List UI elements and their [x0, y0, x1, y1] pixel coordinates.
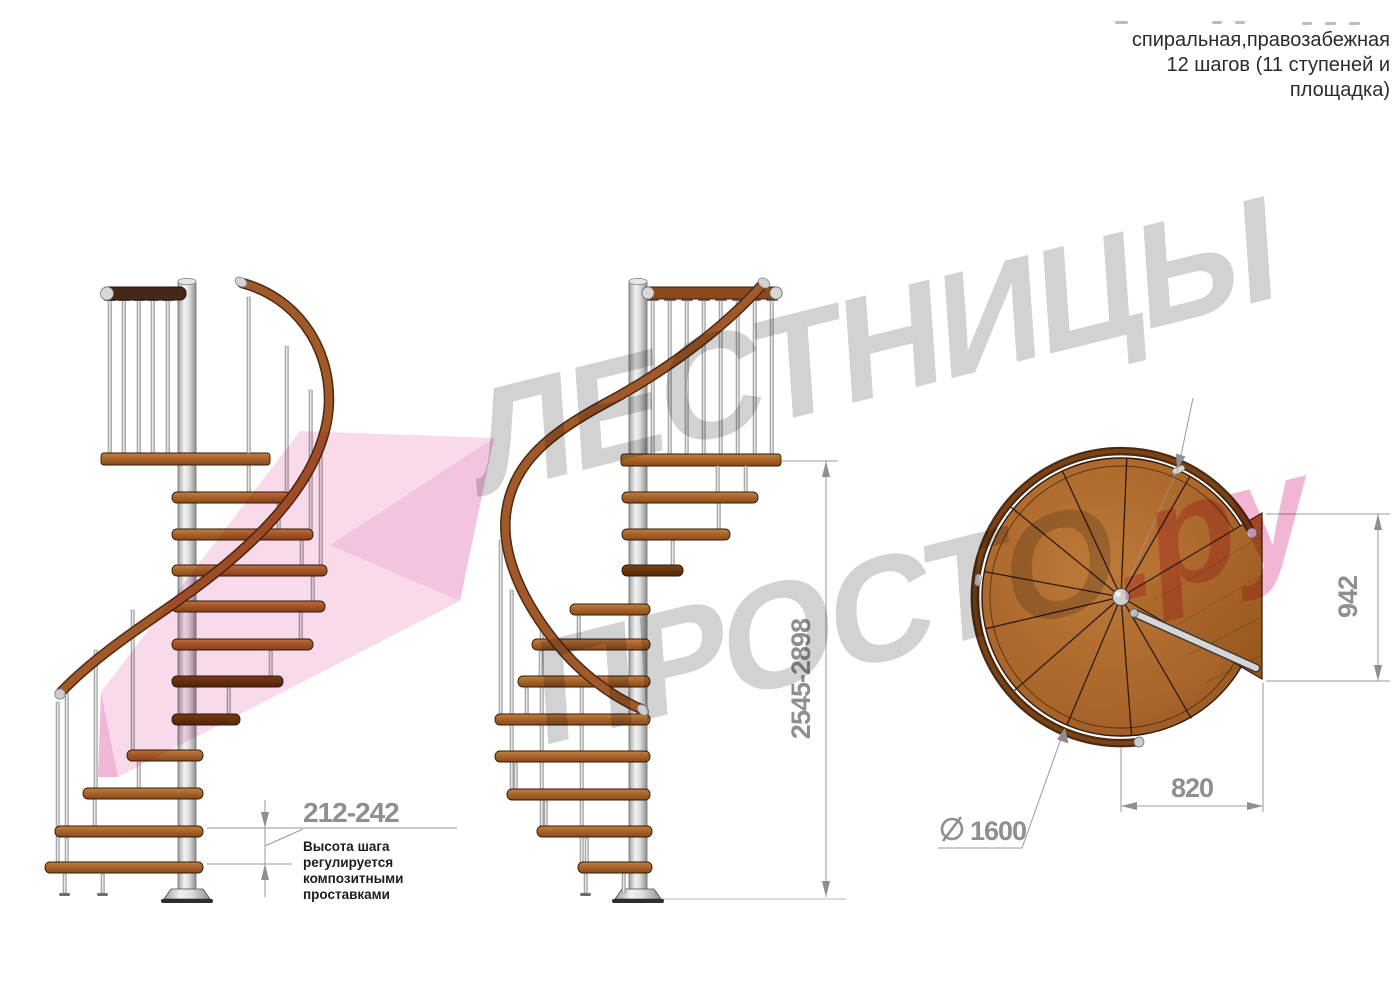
tread: [172, 492, 290, 503]
handrail-end-cap: [55, 689, 65, 699]
step-height-note-3: композитными: [303, 871, 403, 886]
pole-base: [612, 889, 664, 903]
tread: [495, 751, 650, 762]
tread: [172, 639, 313, 650]
platform-width-value: 820: [1171, 773, 1213, 803]
tread: [172, 601, 325, 612]
diameter-value: 1600: [970, 816, 1026, 846]
platform-depth-value: 942: [1333, 576, 1363, 618]
treads: [495, 492, 758, 873]
platform-board: [101, 453, 270, 465]
center-pole: [629, 278, 647, 893]
tread: [570, 604, 650, 615]
rail-end-cap: [101, 287, 114, 300]
step-height-note-2: регулируется: [303, 855, 393, 870]
dimension-step-height: 212-242 Высота шага регулируется компози…: [207, 797, 457, 902]
tread: [127, 750, 203, 761]
staircase-technical-drawing: 212-242 Высота шага регулируется компози…: [0, 0, 1400, 1000]
dimension-total-height: 2545-2898: [782, 461, 838, 897]
side-view-rotated: [495, 276, 846, 903]
dimension-diameter: 1600: [938, 728, 1069, 848]
handrail-joint: [974, 574, 981, 587]
tread: [172, 565, 327, 576]
top-view: [974, 398, 1262, 747]
diameter-icon: [942, 817, 962, 841]
tread: [537, 826, 652, 837]
tread: [55, 826, 203, 837]
platform-railing: [101, 287, 187, 453]
handrail-end-cap: [1134, 737, 1144, 747]
spiral-staircase-drawing-page: спиральная,правозабежная 12 шагов (11 ст…: [0, 0, 1400, 1000]
step-height-note-1: Высота шага: [303, 839, 390, 854]
handrail-end-cap: [1247, 528, 1257, 538]
dimension-platform-depth: 942: [1266, 514, 1390, 681]
tread: [578, 862, 652, 873]
rail-end-cap: [642, 287, 654, 299]
tread: [622, 565, 683, 576]
tread: [45, 862, 203, 873]
pole-base: [161, 889, 213, 903]
platform-board: [621, 454, 781, 466]
tread: [495, 714, 650, 725]
tread: [172, 676, 283, 687]
side-view-front: [45, 275, 329, 903]
baluster-feet: [59, 893, 108, 896]
tread: [622, 492, 758, 503]
tread: [622, 529, 730, 540]
baluster-feet: [580, 893, 591, 896]
step-height-note-4: проставками: [303, 887, 390, 902]
total-height-value: 2545-2898: [786, 618, 816, 739]
tread: [172, 529, 313, 540]
center-pole-top: [1113, 589, 1130, 606]
step-height-value: 212-242: [303, 797, 399, 828]
tread: [172, 714, 240, 725]
rail-end-cap: [770, 287, 782, 299]
tread: [507, 789, 650, 800]
tread: [83, 788, 203, 799]
